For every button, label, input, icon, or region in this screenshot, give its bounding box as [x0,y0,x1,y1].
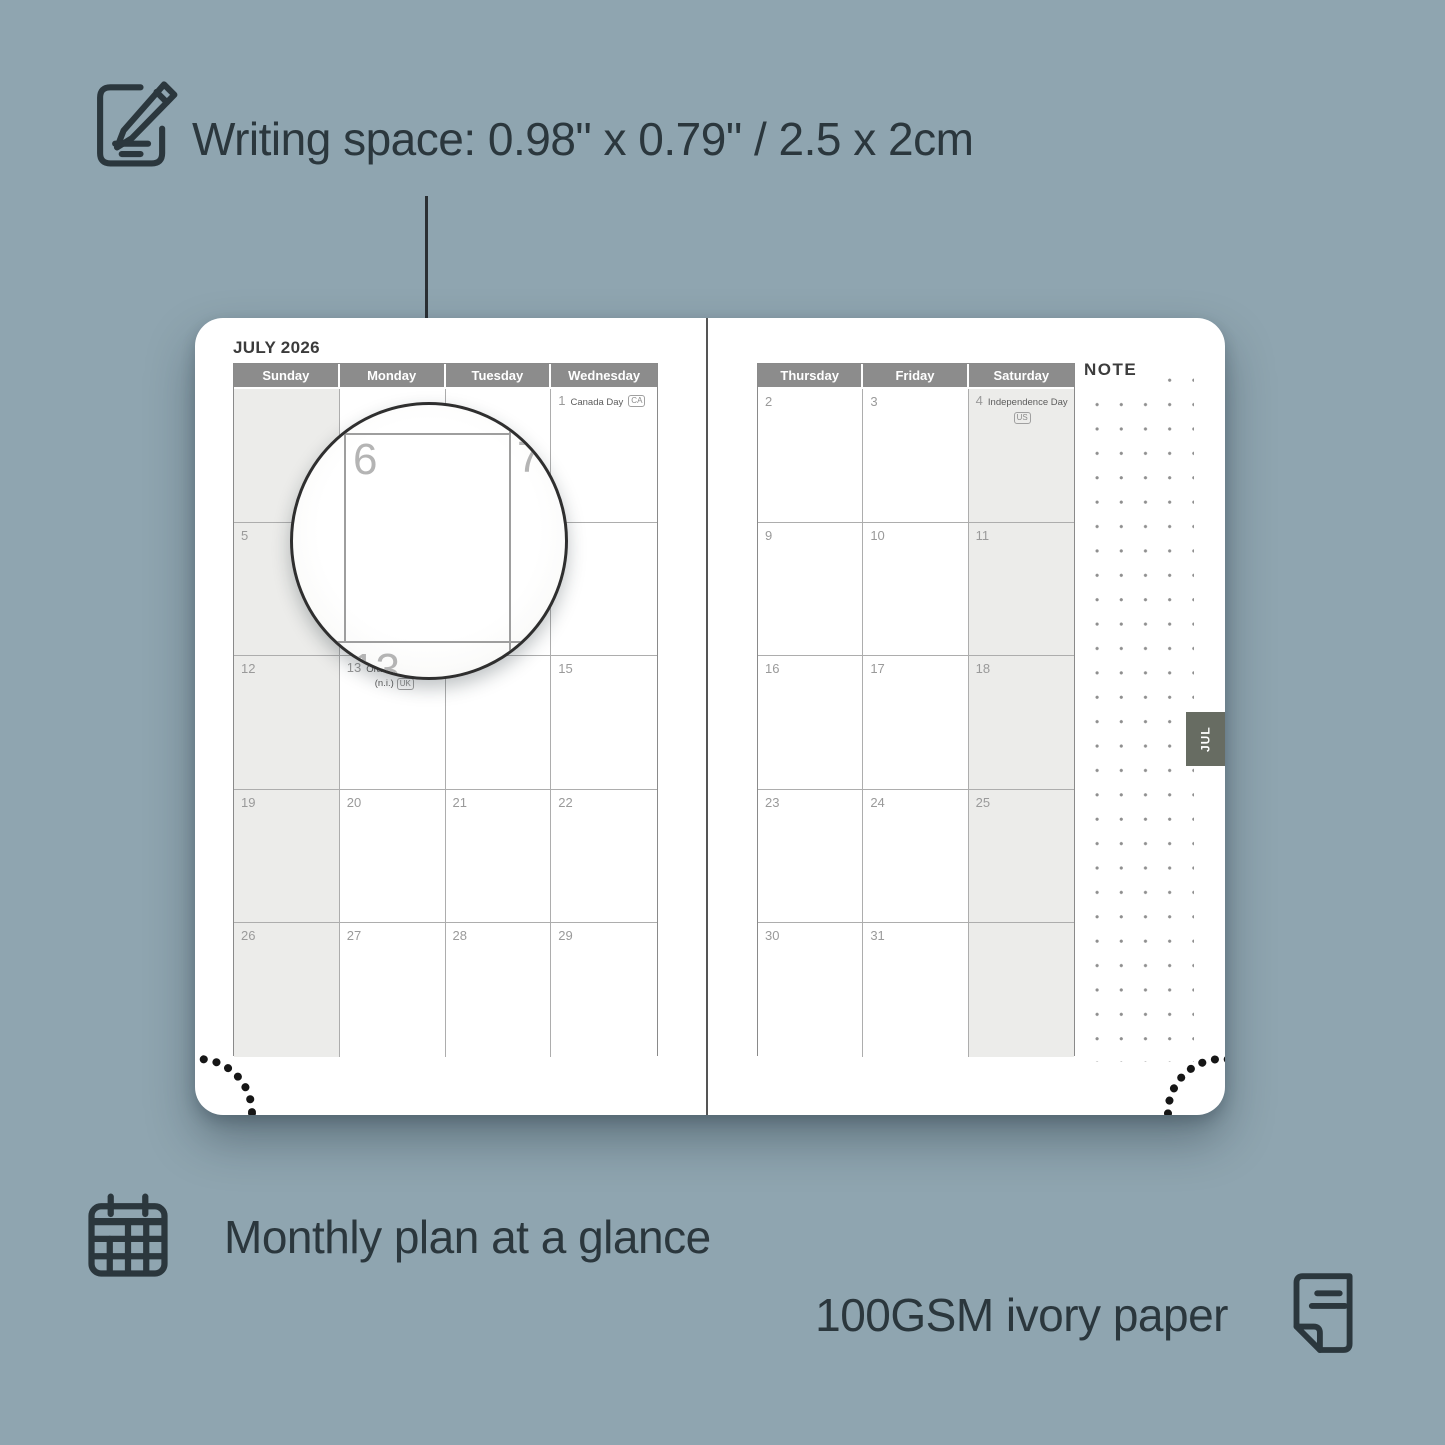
header-friday: Friday [863,364,968,387]
note-dot-grid [1082,362,1194,1062]
product-image: Writing space: 0.98" x 0.79" / 2.5 x 2cm… [0,0,1445,1445]
paper-caption: 100GSM ivory paper [815,1288,1228,1342]
calendar-cell: 19 [234,790,340,924]
calendar-cell: 18 [969,656,1074,790]
calendar-right-page: Thursday Friday Saturday 2 3 4 Independe… [757,363,1075,1056]
calendar-cell: 22 [551,790,657,924]
calendar-cell: 15 [551,656,657,790]
calendar-cell: 25 [969,790,1074,924]
calendar-cell: 27 [340,923,446,1057]
calendar-cell: 10 [863,523,968,657]
writing-space-caption: Writing space: 0.98" x 0.79" / 2.5 x 2cm [192,112,973,166]
calendar-cell: 9 [758,523,863,657]
country-badge: CA [628,395,645,407]
header-thursday: Thursday [758,364,863,387]
country-badge: US [1014,412,1031,424]
calendar-cell-jul4: 4 Independence Day US [969,389,1074,523]
header-wednesday: Wednesday [551,364,657,387]
holiday-name: Canada Day [570,394,623,409]
header-tuesday: Tuesday [446,364,552,387]
calendar-cell-jul1: 1 Canada Day CA [551,389,657,523]
writing-pencil-icon [86,72,180,174]
calendar-cell: 11 [969,523,1074,657]
calendar-cell: 17 [863,656,968,790]
magnified-day-13: 13 [351,645,400,680]
holiday-name: Independence Day [988,394,1068,409]
calendar-cell: 24 [863,790,968,924]
calendar-cell: 21 [446,790,552,924]
note-label: NOTE [1082,359,1151,383]
calendar-cell: 3 [863,389,968,523]
calendar-body: 2 3 4 Independence Day US 9 10 11 16 17 … [758,387,1074,1057]
monthly-plan-caption: Monthly plan at a glance [224,1210,711,1264]
calendar-cell: 30 [758,923,863,1057]
month-title: JULY 2026 [233,338,320,358]
month-tab-jul: JUL [1186,712,1225,766]
calendar-cell [969,923,1074,1057]
stitch-dots-left [195,1051,259,1115]
day-number: 4 [976,394,983,407]
weekday-header-row: Sunday Monday Tuesday Wednesday [234,364,657,387]
header-saturday: Saturday [969,364,1074,387]
weekday-header-row: Thursday Friday Saturday [758,364,1074,387]
calendar-cell: 16 [758,656,863,790]
calendar-cell: 31 [863,923,968,1057]
header-monday: Monday [340,364,446,387]
day-number: 1 [558,394,565,407]
calendar-cell: 26 [234,923,340,1057]
magnified-day-7: 7 [517,433,541,483]
magnifier-circle: 6 7 13 [290,402,568,680]
calendar-icon [80,1188,176,1286]
calendar-cell: 2 [758,389,863,523]
magnified-day-6: 6 [353,435,377,485]
header-sunday: Sunday [234,364,340,387]
calendar-cell: 23 [758,790,863,924]
calendar-cell: 20 [340,790,446,924]
paper-icon [1274,1264,1364,1364]
country-badge: UK [397,678,414,690]
stitch-dots-right [1161,1051,1225,1115]
calendar-cell: 29 [551,923,657,1057]
calendar-cell: 12 [234,656,340,790]
spine-divider [706,318,708,1115]
calendar-cell: 28 [446,923,552,1057]
holiday-note: (n.i.) [375,678,394,689]
